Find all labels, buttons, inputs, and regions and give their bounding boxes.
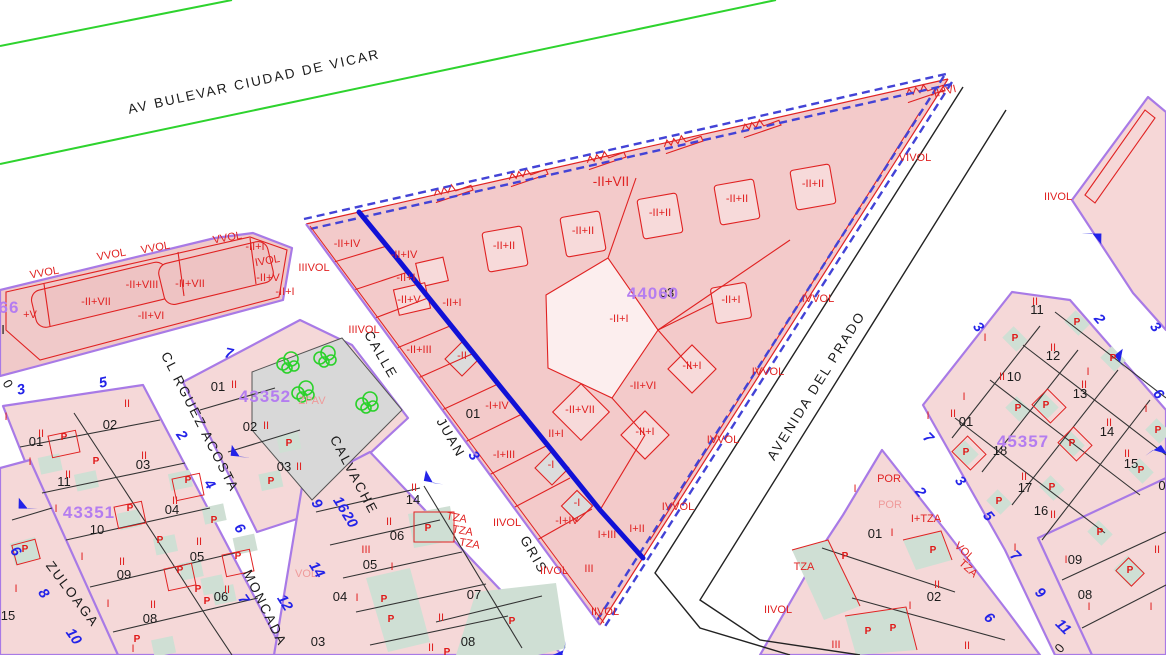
construction-code: -II+II xyxy=(572,225,594,237)
patio-mark: P xyxy=(1069,438,1076,449)
construction-code: II+I xyxy=(548,428,564,440)
construction-code: II xyxy=(196,536,202,548)
patio-mark: P xyxy=(1074,317,1081,328)
construction-code: II xyxy=(999,371,1005,383)
construction-code: -II+I xyxy=(396,272,415,284)
construction-code: I xyxy=(80,551,83,563)
parcel-number: 43351 xyxy=(63,503,115,522)
construction-code: IVVOL xyxy=(802,293,834,305)
patio-mark: P xyxy=(1110,353,1117,364)
construction-code: -II+I xyxy=(721,294,740,306)
construction-code: II xyxy=(231,379,237,391)
patio-mark: P xyxy=(211,515,218,526)
patio-mark: P xyxy=(177,565,184,576)
construction-code: VIVOL xyxy=(899,152,931,164)
lot-number: 03 xyxy=(277,459,291,474)
construction-code: I xyxy=(1087,601,1090,613)
construction-code: IIVOL xyxy=(764,604,792,616)
construction-code: +V xyxy=(23,309,37,321)
lot-number: 15 xyxy=(1,608,15,623)
parcel-block-northeast[interactable] xyxy=(1072,97,1166,330)
construction-code: -II+I xyxy=(635,426,654,438)
lot-number: 02 xyxy=(103,417,117,432)
construction-code: -I+IV xyxy=(485,400,509,412)
construction-code: -II+I xyxy=(442,297,461,309)
construction-code: IIVOL xyxy=(540,565,568,577)
construction-code: POR xyxy=(877,473,901,485)
patio-mark: P xyxy=(930,545,937,556)
construction-code: III xyxy=(361,544,370,556)
lot-number: 09 xyxy=(1068,552,1082,567)
construction-code: IIVOL xyxy=(1044,191,1072,203)
construction-code: I xyxy=(983,332,986,344)
construction-code: -II+VI xyxy=(630,380,657,392)
construction-code: IVVOL xyxy=(707,434,739,446)
construction-code: II xyxy=(1050,509,1056,521)
construction-code: -II+II xyxy=(649,207,671,219)
construction-code: II xyxy=(119,556,125,568)
construction-code: -II+VI xyxy=(138,310,165,322)
construction-code: II xyxy=(1050,342,1056,354)
construction-code: I xyxy=(355,592,358,604)
construction-code: -I+III xyxy=(493,449,515,461)
construction-code: II xyxy=(1081,379,1087,391)
patio-mark: P xyxy=(388,614,395,625)
construction-code: -II+II xyxy=(802,178,824,190)
construction-code: TZA xyxy=(794,561,815,573)
construction-code: I xyxy=(28,456,31,468)
portal-number: 3 xyxy=(1146,319,1163,335)
construction-code: -II+II xyxy=(493,240,515,252)
construction-code: -II xyxy=(457,350,467,362)
lot-number: 01 xyxy=(868,526,882,541)
parcel-number: 45357 xyxy=(997,432,1049,451)
construction-code: -II+V xyxy=(397,294,421,306)
construction-code: -II+V xyxy=(256,272,280,284)
lot-number: 01 xyxy=(959,414,973,429)
construction-code: I xyxy=(926,410,929,422)
street-label-fragment: 0 xyxy=(0,377,16,391)
patio-mark: P xyxy=(1097,527,1104,538)
construction-code: -II+VIII xyxy=(126,279,159,291)
construction-code: -II+I xyxy=(609,313,628,325)
construction-code: II xyxy=(1124,448,1130,460)
construction-code: I xyxy=(4,411,7,423)
construction-code: I xyxy=(1086,366,1089,378)
construction-code: II xyxy=(428,642,434,654)
patio-mark: P xyxy=(1155,425,1162,436)
construction-code: I xyxy=(390,561,393,573)
construction-code: I xyxy=(908,600,911,612)
construction-code: I xyxy=(54,503,57,515)
parcel-number: 44060 xyxy=(627,284,679,303)
patio-mark: P xyxy=(1015,403,1022,414)
lot-number: 01 xyxy=(211,379,225,394)
cadastral-map-viewport[interactable]: AV BULEVAR CIUDAD DE VICARCL RGUEZ ACOST… xyxy=(0,0,1166,655)
construction-code: II xyxy=(263,420,269,432)
construction-code: II xyxy=(141,450,147,462)
construction-code: I xyxy=(890,527,893,539)
patio-mark: P xyxy=(1049,482,1056,493)
construction-code: -I+IV xyxy=(555,515,579,527)
patio-mark: P xyxy=(61,432,68,443)
patio-mark: P xyxy=(127,503,134,514)
construction-code: II xyxy=(1021,471,1027,483)
portal-number: 6 xyxy=(230,521,248,538)
construction-code: II xyxy=(1106,417,1112,429)
portal-number: 7 xyxy=(919,430,937,448)
construction-code: II xyxy=(65,469,71,481)
construction-code: II xyxy=(964,640,970,652)
construction-code: I xyxy=(1149,601,1152,613)
construction-code: I xyxy=(106,598,109,610)
construction-code: POR xyxy=(878,499,902,511)
construction-code: IVVOL xyxy=(752,366,784,378)
lot-number: 10 xyxy=(90,522,104,537)
construction-code: -II+IV xyxy=(334,238,361,250)
construction-code: I xyxy=(853,483,856,495)
parcel-number: 66 xyxy=(0,298,19,317)
direction-arrow-icon xyxy=(420,469,443,492)
lot-number: 09 xyxy=(117,567,131,582)
lot-number: 07 xyxy=(467,587,481,602)
lot-number: 02 xyxy=(927,589,941,604)
lot-number: 10 xyxy=(1007,369,1021,384)
patio-mark: P xyxy=(842,551,849,562)
construction-code: I xyxy=(1064,554,1067,566)
patio-mark: P xyxy=(865,626,872,637)
lot-number: 01 xyxy=(466,406,480,421)
portal-number: 5 xyxy=(98,374,110,392)
construction-code: ZPAV xyxy=(298,395,326,407)
construction-code: IIVOL xyxy=(493,517,521,529)
construction-code: -II+III xyxy=(406,344,431,356)
lot-number: 05 xyxy=(190,549,204,564)
patio-mark: P xyxy=(509,616,516,627)
construction-code: -II+I xyxy=(682,360,701,372)
portal-number: 2 xyxy=(172,427,190,444)
lot-number: 08 xyxy=(143,611,157,626)
construction-code: -I xyxy=(548,459,555,471)
construction-code: -II+I xyxy=(275,286,294,298)
lot-number: 05 xyxy=(363,557,377,572)
construction-code: I+II xyxy=(629,523,645,535)
patio-mark: P xyxy=(134,634,141,645)
construction-code: -II+VII xyxy=(175,278,205,290)
construction-code: -II+VII xyxy=(565,404,595,416)
lot-number: 02 xyxy=(243,419,257,434)
construction-code: II xyxy=(1032,296,1038,308)
construction-code: II xyxy=(150,599,156,611)
construction-code: -II+II xyxy=(726,193,748,205)
construction-code: -II+VII xyxy=(81,296,111,308)
construction-code: II xyxy=(438,612,444,624)
patio-mark: P xyxy=(1012,333,1019,344)
lot-number: 04 xyxy=(333,589,347,604)
construction-code: II xyxy=(38,428,44,440)
patio-mark: P xyxy=(1127,565,1134,576)
portal-number: 3 xyxy=(951,473,968,489)
construction-code: IIIVOL xyxy=(298,262,329,274)
construction-code: II xyxy=(934,579,940,591)
patio-mark: P xyxy=(890,623,897,634)
portal-number: 3 xyxy=(16,381,27,398)
patio-mark: P xyxy=(444,647,451,655)
patio-mark: P xyxy=(185,475,192,486)
construction-code: IIIVOL xyxy=(348,324,379,336)
construction-code: -II+VII xyxy=(593,174,629,189)
patio-mark: P xyxy=(996,496,1003,507)
construction-code: IIVOL xyxy=(591,606,619,618)
construction-code: II xyxy=(296,461,302,473)
lot-number: 16 xyxy=(1034,503,1048,518)
construction-code: II xyxy=(124,398,130,410)
construction-code: II xyxy=(386,516,392,528)
street-label: AV BULEVAR CIUDAD DE VICAR xyxy=(127,46,382,116)
patio-mark: P xyxy=(157,535,164,546)
patio-mark: P xyxy=(195,584,202,595)
patio-mark: P xyxy=(286,438,293,449)
lot-number: 08 xyxy=(461,634,475,649)
cadastral-map[interactable]: AV BULEVAR CIUDAD DE VICARCL RGUEZ ACOST… xyxy=(0,0,1166,655)
construction-code: I+III xyxy=(598,529,617,541)
construction-code: II xyxy=(411,482,417,494)
patio-mark: P xyxy=(1138,465,1145,476)
construction-code: IVVOL xyxy=(662,501,694,513)
construction-code: III xyxy=(831,639,840,651)
construction-code: II xyxy=(950,408,956,420)
construction-code: I xyxy=(1144,403,1147,415)
patio-mark: P xyxy=(1043,400,1050,411)
patio-mark: P xyxy=(381,594,388,605)
construction-code: -II+I xyxy=(245,241,264,253)
construction-code: I+TZA xyxy=(911,513,942,525)
lot-number: 14 xyxy=(406,492,420,507)
patio-mark: P xyxy=(235,551,242,562)
construction-code: III xyxy=(584,563,593,575)
construction-code: II xyxy=(172,495,178,507)
parcel-number: 43352 xyxy=(239,387,291,406)
street-label-fragment: I xyxy=(1,322,5,337)
patio-mark: P xyxy=(425,523,432,534)
construction-code: II xyxy=(224,584,230,596)
construction-code: -I xyxy=(574,497,581,509)
patio-mark: P xyxy=(93,456,100,467)
lot-number: 06 xyxy=(390,528,404,543)
patio-mark: P xyxy=(963,447,970,458)
construction-code: I xyxy=(14,583,17,595)
patio-mark: P xyxy=(204,596,211,607)
lot-number: 0 xyxy=(1158,478,1165,493)
lot-number: 08 xyxy=(1078,587,1092,602)
lot-number: 03 xyxy=(311,634,325,649)
construction-code: -II+IV xyxy=(391,249,418,261)
construction-code: II xyxy=(1154,544,1160,556)
construction-code: I xyxy=(962,391,965,403)
patio-mark: P xyxy=(268,476,275,487)
